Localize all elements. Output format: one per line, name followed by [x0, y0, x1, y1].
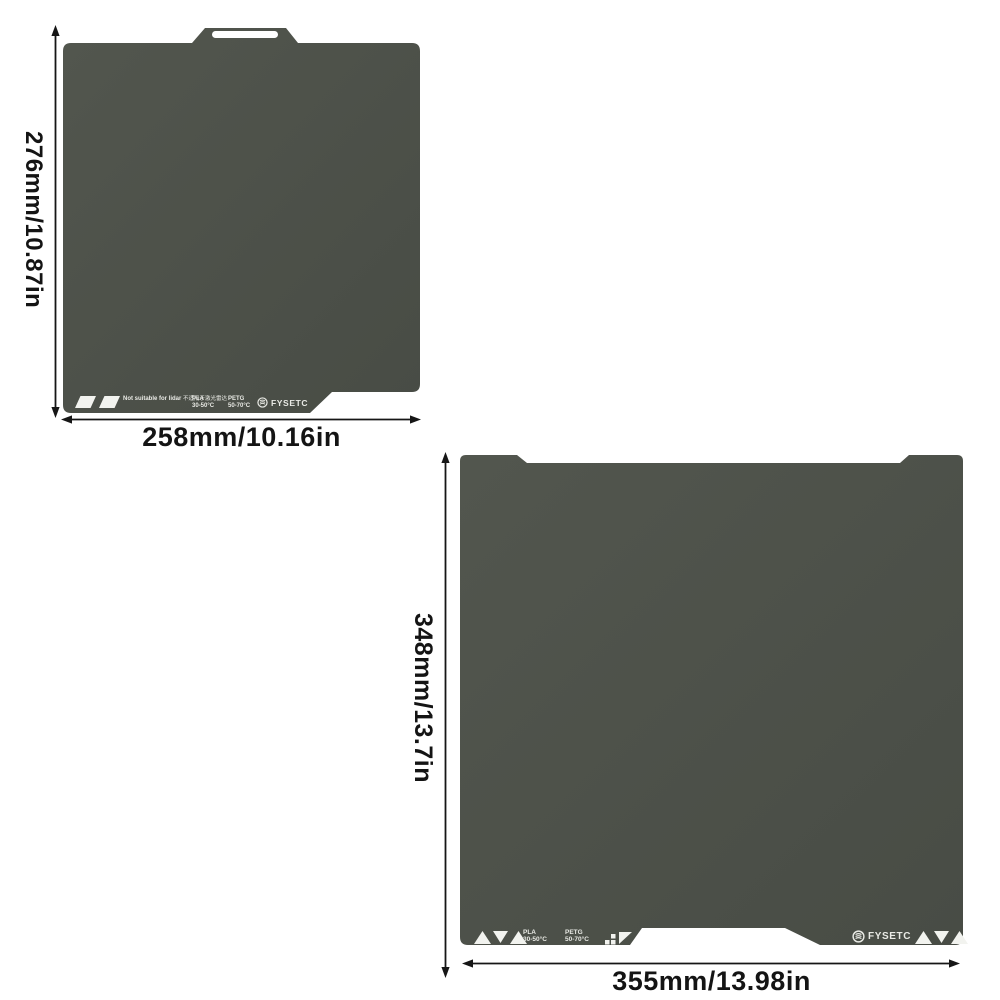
dimension-arrow-vertical-large — [439, 452, 452, 978]
brand-name: FYSETC — [271, 398, 308, 408]
pla-temp: 30-50°C — [523, 936, 547, 943]
fysetc-brand: FYSETC — [257, 397, 308, 408]
build-plate-large-shape — [460, 450, 963, 946]
pla-temp-label: PLA 30-50°C — [523, 929, 547, 944]
petg-temp-label: PETG 50-70°C — [565, 929, 589, 944]
build-plate-large: PLA 30-50°C PETG 50-70°C FYSETC — [460, 450, 963, 946]
height-dimension-small: 276mm/10.87in — [15, 27, 47, 413]
petg-name: PETG — [228, 396, 250, 403]
dimension-arrow-vertical-small — [49, 25, 62, 418]
width-dimension-small: 258mm/10.16in — [63, 422, 420, 453]
pla-temp-label: PLA 30-50°C — [192, 396, 214, 410]
fysetc-brand: FYSETC — [852, 930, 911, 943]
height-dimension-large: 348mm/13.7in — [405, 450, 437, 946]
build-plate-small: Not suitable for lidar 不适用于激光雷达 PLA 30-5… — [63, 27, 420, 413]
pla-name: PLA — [192, 396, 214, 403]
pla-temp: 30-50°C — [192, 403, 214, 410]
product-dimension-diagram: { "diagram": { "colors": { "plate": "#4c… — [0, 0, 1000, 1000]
brand-name: FYSETC — [868, 931, 911, 942]
petg-temp: 50-70°C — [565, 936, 589, 943]
lidar-warning-en: Not suitable for lidar — [123, 396, 181, 402]
width-dimension-large: 355mm/13.98in — [460, 966, 963, 997]
fysetc-logo-icon — [257, 397, 268, 408]
fysetc-logo-icon — [852, 930, 865, 943]
pixel-step-icon — [605, 931, 633, 945]
petg-temp: 50-70°C — [228, 403, 250, 410]
petg-temp-label: PETG 50-70°C — [228, 396, 250, 410]
build-plate-small-shape — [63, 27, 420, 413]
handle-slot — [212, 31, 278, 38]
